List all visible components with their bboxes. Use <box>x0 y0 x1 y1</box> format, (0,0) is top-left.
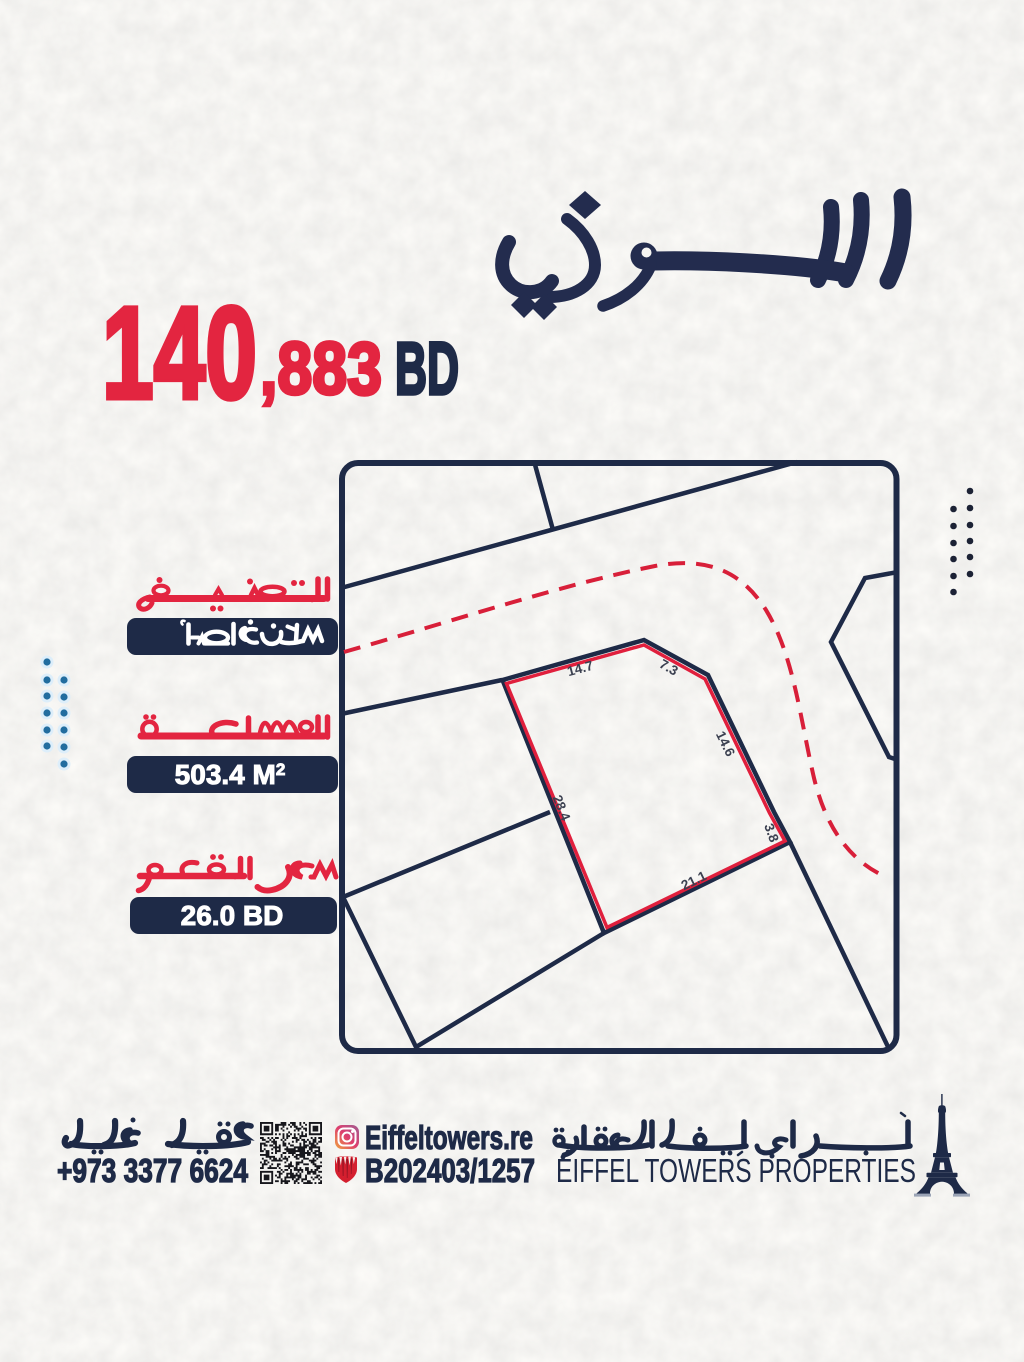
svg-text:Eiffeltowers.re: Eiffeltowers.re <box>365 1119 533 1156</box>
svg-text:+973 3377 6624: +973 3377 6624 <box>57 1152 249 1189</box>
svg-text:BD: BD <box>395 327 459 410</box>
svg-text:,883: ,883 <box>260 327 382 410</box>
svg-text:EIFFEL TOWERS PROPERTIES: EIFFEL TOWERS PROPERTIES <box>556 1153 916 1190</box>
svg-text:B202403/1257: B202403/1257 <box>365 1152 535 1189</box>
svg-text:503.4 M2: 503.4 M2 <box>175 759 286 790</box>
svg-text:140: 140 <box>102 279 257 426</box>
svg-text:26.0 BD: 26.0 BD <box>181 900 284 931</box>
